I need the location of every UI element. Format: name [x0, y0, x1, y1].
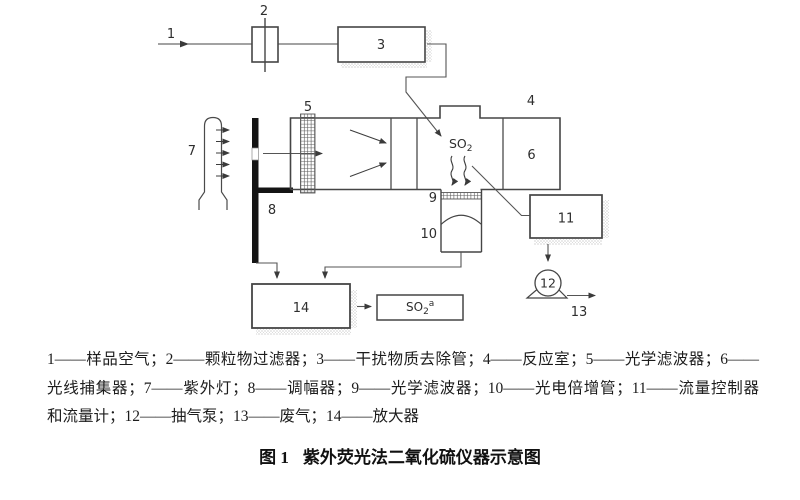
label-reaction-chamber: 4 — [527, 94, 535, 109]
instrument-schematic: 1 2 3 7 — [0, 0, 800, 345]
reaction-chamber — [291, 106, 561, 190]
label-interference-remover: 3 — [377, 38, 385, 53]
figure-number: 图 1 — [259, 448, 289, 467]
label-modulator: 8 — [268, 203, 276, 218]
label-pump: 12 — [540, 276, 556, 291]
legend-line-1: 1——样品空气；2——颗粒物过滤器；3——干扰物质去除管；4——反应室；5——光… — [47, 346, 759, 375]
modulator — [252, 118, 293, 263]
pmt-photocathode-icon — [441, 215, 482, 224]
label-particulate-filter: 2 — [260, 4, 268, 19]
particulate-filter — [252, 18, 338, 72]
fluorescence-waves-icon — [451, 156, 466, 185]
figure-caption: 图 1紫外荧光法二氧化硫仪器示意图 — [0, 443, 800, 468]
label-light-trap: 6 — [527, 148, 535, 163]
label-optical-filter-5: 5 — [304, 100, 312, 115]
gas-outlet-line — [472, 166, 530, 216]
chamber-partitions — [391, 118, 503, 190]
uv-lamp — [199, 118, 227, 211]
legend-line-2: 光线捕集器；7——紫外灯；8——调幅器；9——光学滤波器；10——光电倍增管；1… — [47, 375, 759, 404]
label-uv-lamp: 7 — [188, 144, 196, 159]
pmt-signal-line — [325, 252, 461, 278]
converging-beams-icon — [350, 130, 386, 177]
flow-arrow-icon — [180, 41, 189, 48]
optical-filter-emission — [441, 193, 482, 200]
so2-label: SO2 — [449, 136, 473, 154]
legend-line-3: 和流量计；12——抽气泵；13——废气；14——放大器 — [47, 403, 759, 432]
label-optical-filter-9: 9 — [429, 191, 437, 206]
label-exhaust: 13 — [571, 305, 588, 320]
modulator-aperture — [252, 148, 259, 160]
label-flow-controller: 11 — [558, 212, 575, 227]
label-pmt: 10 — [420, 227, 437, 242]
modulator-signal-line — [256, 263, 277, 278]
label-sample-air: 1 — [167, 27, 175, 42]
legend: 1——样品空气；2——颗粒物过滤器；3——干扰物质去除管；4——反应室；5——光… — [47, 346, 759, 432]
figure-page: 1 2 3 7 — [0, 0, 800, 500]
uv-rays-icon — [216, 130, 229, 176]
label-amplifier: 14 — [293, 301, 310, 316]
figure-title: 紫外荧光法二氧化硫仪器示意图 — [303, 448, 541, 467]
optical-filter-excitation — [301, 114, 316, 193]
